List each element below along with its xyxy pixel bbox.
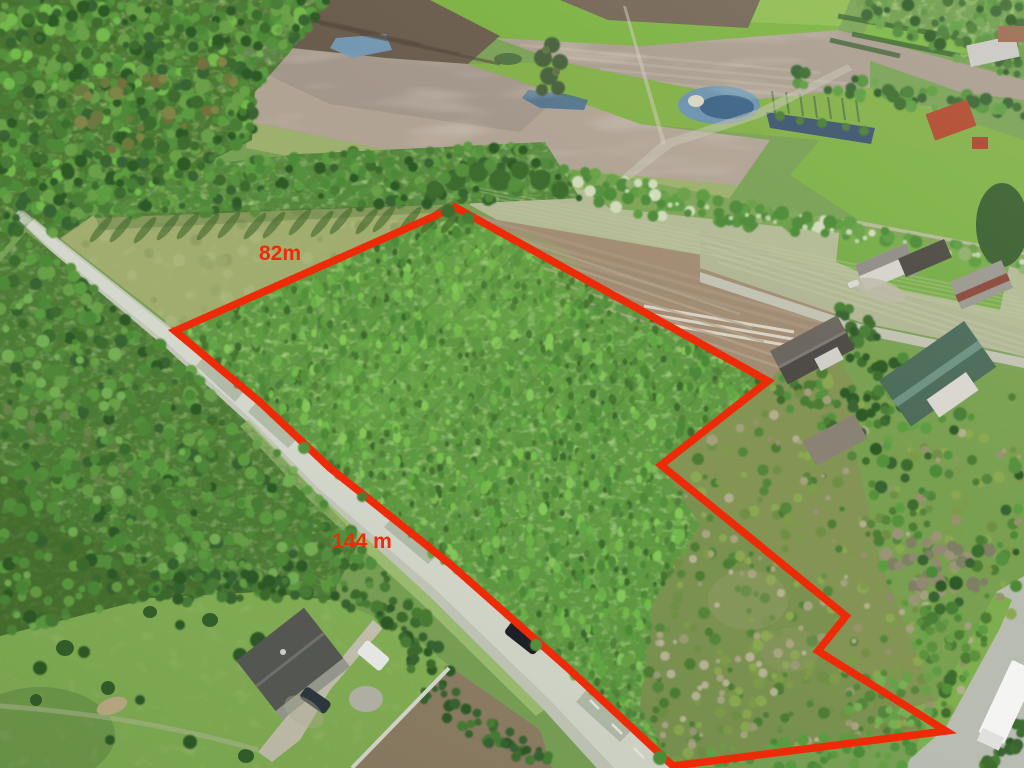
svg-text:144 m: 144 m: [332, 530, 392, 553]
svg-text:82m: 82m: [259, 242, 301, 265]
